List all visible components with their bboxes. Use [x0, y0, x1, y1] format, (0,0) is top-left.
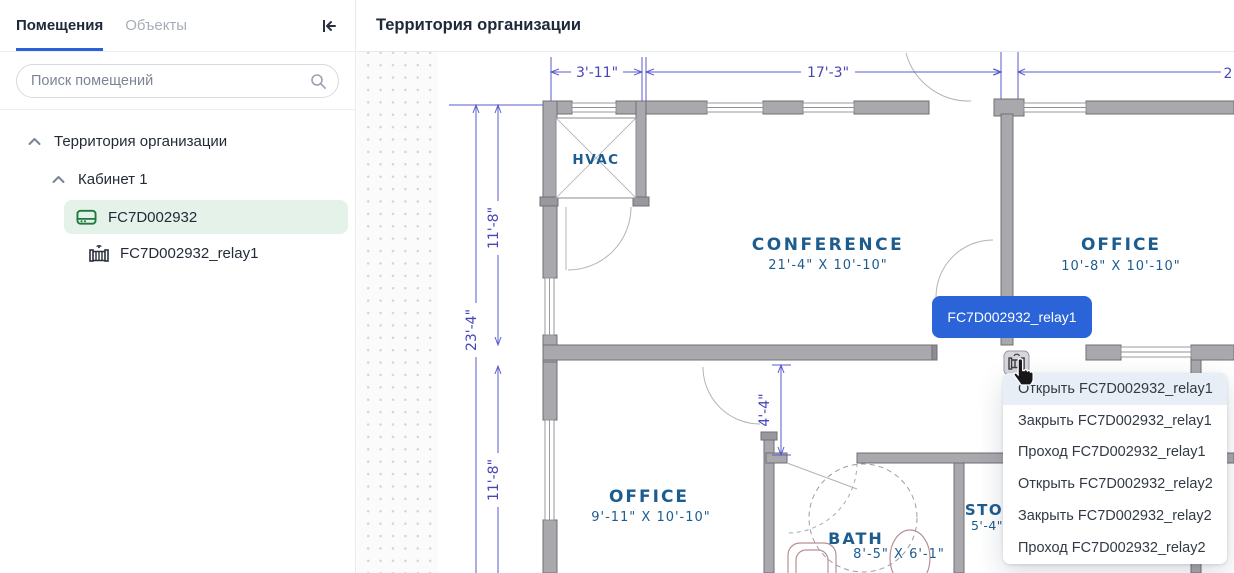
room-conference: CONFERENCE [752, 235, 904, 255]
app-window: Помещения Объекты Территория органи [0, 0, 1234, 573]
search-section [0, 52, 355, 110]
menu-item-pass-relay2[interactable]: Проход FC7D002932_relay2 [1003, 532, 1227, 564]
room-office-left-size: 9'-11" X 10'-10" [591, 510, 711, 525]
tree-item-label: FC7D002932_relay1 [120, 245, 258, 262]
tree-item-label: Кабинет 1 [78, 171, 148, 188]
room-storage: STO [965, 501, 1003, 519]
chevron-up-icon [28, 137, 41, 146]
rooms-tree: Территория организации Кабинет 1 FC7D002… [0, 110, 355, 270]
collapse-left-icon [319, 16, 339, 36]
room-bath-size: 8'-5" X 6'-1" [853, 547, 945, 562]
page-title: Территория организации [376, 16, 581, 35]
room-conference-size: 21'-4" X 10'-10" [768, 258, 888, 273]
tree-item-label: FC7D002932 [108, 209, 197, 226]
tab-rooms[interactable]: Помещения [16, 0, 103, 51]
search-input[interactable] [16, 64, 339, 98]
tree-item-territory[interactable]: Территория организации [0, 124, 355, 158]
menu-item-close-relay2[interactable]: Закрыть FC7D002932_relay2 [1003, 500, 1227, 532]
room-hvac: HVAC [572, 152, 619, 168]
main-header: Территория организации [357, 0, 1234, 52]
tree-item-device-selected[interactable]: FC7D002932 [64, 200, 348, 234]
dim-left-total: 23'-4" [464, 309, 480, 351]
tree-item-cabinet[interactable]: Кабинет 1 [0, 162, 355, 196]
sidebar: Помещения Объекты Территория органи [0, 0, 356, 573]
dim-hall: 4'-4" [757, 393, 773, 426]
menu-item-close-relay1[interactable]: Закрыть FC7D002932_relay1 [1003, 405, 1227, 437]
gate-relay-icon [87, 242, 111, 264]
room-office-right: OFFICE [1081, 235, 1161, 255]
dim-left-upper: 11'-8" [486, 207, 502, 249]
tree-item-relay[interactable]: FC7D002932_relay1 [0, 236, 355, 270]
room-office-right-size: 10'-8" X 10'-10" [1061, 259, 1181, 274]
dim-left-lower: 11'-8" [486, 459, 502, 501]
floor-plan-canvas[interactable]: 3'-11" 17'-3" 2 23'-4" 11'-8" 11'-8" 4'-… [357, 52, 1234, 573]
sidebar-tabs: Помещения Объекты [0, 0, 355, 52]
relay-tooltip-label: FC7D002932_relay1 [947, 309, 1076, 325]
menu-item-open-relay2[interactable]: Открыть FC7D002932_relay2 [1003, 468, 1227, 500]
chevron-up-icon [52, 175, 65, 184]
search-icon [310, 73, 327, 90]
dim-top-left: 3'-11" [576, 65, 618, 81]
menu-item-pass-relay1[interactable]: Проход FC7D002932_relay1 [1003, 437, 1227, 469]
dim-top-mid: 17'-3" [807, 65, 849, 81]
context-menu: Открыть FC7D002932_relay1 Закрыть FC7D00… [1003, 373, 1227, 564]
room-bath: BATH [828, 529, 884, 548]
relay-tooltip: FC7D002932_relay1 [932, 296, 1092, 338]
room-storage-size: 5'-4" [971, 518, 1003, 533]
cursor-hand-icon [1009, 357, 1037, 389]
dim-top-right: 2 [1224, 66, 1233, 82]
controller-device-icon [75, 207, 98, 227]
room-office-left: OFFICE [609, 487, 689, 507]
tab-objects[interactable]: Объекты [125, 0, 187, 51]
sidebar-collapse-button[interactable] [319, 0, 339, 51]
tree-item-label: Территория организации [54, 133, 227, 150]
